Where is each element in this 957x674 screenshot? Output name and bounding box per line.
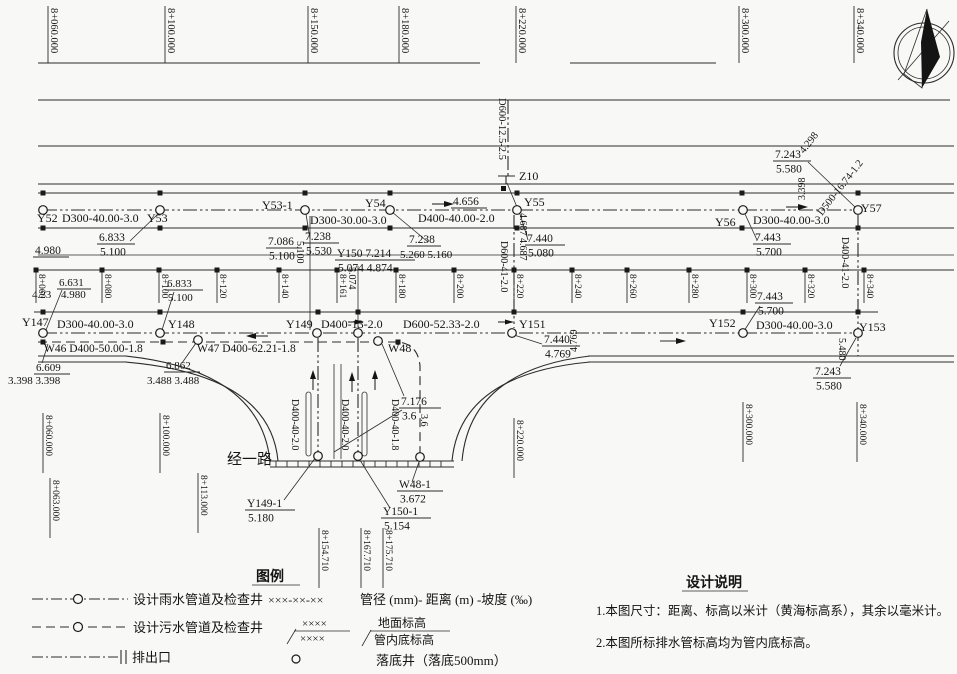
plan-label-rotated: D600-41-2.0 [498,241,509,292]
note-1: 1.本图尺寸：距离、标高以米计（黄海标高系），其余以毫米计。 [596,603,949,618]
plan-label: 4.980 [61,289,86,301]
elevation-label: 6.833 [167,278,192,290]
manhole-circle [39,206,48,215]
elevation-label: 3.6 [402,411,417,423]
station-label: 8+300.000 [739,8,750,53]
plan-label: Y55 [524,195,545,209]
legend-drop-label: 落底井（落底500mm） [376,653,507,668]
elevation-label: 6.862 [166,360,191,372]
station-label: 8+060.000 [43,415,53,456]
pipe-node-square [856,310,861,315]
manhole-circle [314,452,323,461]
manhole-circle [508,329,517,338]
plan-label: Z10 [519,169,538,183]
plan-label: D300-40.00-3.0 [753,213,830,227]
plan-label: D300-30.00-3.0 [310,213,387,227]
drainage-plan-drawing: 图例 设计雨水管道及检查井 ×××-××-×× 管径 (mm)- 距离 (m) … [0,0,957,674]
elevation-label: 6.833 [99,232,125,244]
tick-square [625,268,630,273]
tick-square [745,268,750,273]
pipe-node-square [303,191,308,196]
legend-sewer-manhole-icon [74,623,83,632]
pipe-node-square [856,226,861,231]
plan-label: Y152 [709,316,736,330]
manhole-circle [354,329,363,338]
elevation-label: 5.080 [528,248,554,260]
legend-elev-top: ×××× [302,618,327,630]
elevation-label: 6.609 [36,362,61,374]
legend-outfall-label: 排出口 [132,650,171,665]
plan-label: W47 D400-62.21-1.8 [197,343,296,355]
plan-label: Y151 [519,317,546,331]
manhole-circle [386,206,395,215]
station-label: 8+080 [102,274,112,299]
plan-label-rotated: D400-40-2.0 [339,399,350,450]
station-label: 8+320 [805,274,815,299]
station-label: 8+180.000 [399,8,410,53]
legend-sewer-label: 设计污水管道及检查井 [133,620,263,635]
pipe-node-square [316,310,321,315]
station-label: 8+161 [337,274,347,299]
station-label: 8+167.710 [361,530,371,571]
elevation-label: Y150 7.214 [337,248,392,260]
manhole-circle [301,206,310,215]
tick-square [277,268,282,273]
manhole-circle [39,329,48,338]
pipe-node-square [356,310,361,315]
manhole-circle [513,206,522,215]
elevation-label: 5.580 [816,381,842,393]
station-label: 8+100.000 [160,415,170,456]
legend-elev-bottom: ×××× [300,633,325,645]
tick-square [215,268,220,273]
elevation-label: 5.100 [168,292,193,304]
elevation-label: 7.443 [757,291,783,303]
elevation-label: 4.769 [545,349,571,361]
pipe-node-square [512,310,517,315]
plan-label: 经一路 [227,451,272,468]
pipe-node-square [396,340,401,345]
elevation-label: W48-1 [399,479,431,491]
tick-square [394,268,399,273]
generated-annotations: Y52D300-40.00-3.0Y53Y53-1Y54D300-30.00-3… [8,6,886,588]
manhole-circle [854,206,863,215]
elevation-label: 7.238 [409,234,435,246]
elevation-label: 7.243 [815,366,841,378]
note-2: 2.本图所标排水管标高均为管内底标高。 [596,635,818,650]
drainage-plan-sheet: 图例 设计雨水管道及检查井 ×××-××-×× 管径 (mm)- 距离 (m) … [0,0,957,674]
manhole-circle [156,329,165,338]
tick-square [34,268,39,273]
station-label: 8+240 [572,274,582,299]
pipe-node-square [388,226,393,231]
station-label: 8+300 [747,274,757,299]
elevation-label: 7.176 [401,396,427,408]
elevation-label: 6.631 [59,277,84,289]
station-label: 8+220.000 [514,420,524,461]
pipe-node-square [740,191,745,196]
elevation-label: 7.243 [775,149,801,161]
station-label: 8+220.000 [516,8,527,53]
manhole-circle [854,329,863,338]
manhole-circle [739,206,748,215]
plan-label-rotated: 5.480 [836,338,847,361]
manhole-circle [313,329,322,338]
station-label: 8+150.000 [308,8,319,53]
legend-rain-label: 设计雨水管道及检查井 [133,592,263,607]
tick-square [157,268,162,273]
plan-label-rotated: D400-40-2.0 [289,399,300,450]
tick-square [862,268,867,273]
pipe-node-square [303,226,308,231]
station-label: 8+100 [159,274,169,299]
plan-label: D300-40.00-3.0 [62,211,139,225]
station-label: 8+154.710 [319,530,329,571]
elevation-label: 5.100 [100,247,126,259]
station-label: 8+180 [396,274,406,299]
plan-label: Y56 [715,215,736,229]
pipe-node-square [41,310,46,315]
plan-label: Y147 [22,315,49,329]
sewer-pipe-lines [38,342,420,456]
pipe-node-square [740,226,745,231]
station-label: 8+063.000 [50,480,60,521]
pipe-node-square [856,191,861,196]
plan-label-rotated: D600-12.5-2.5 [496,98,507,160]
pipe-node-square [158,226,163,231]
elevation-label: 7.440 [544,334,570,346]
pipe-node-square [41,340,46,345]
plan-label: Y149 [286,317,313,331]
plan-label: Y153 [859,320,886,334]
station-label: 8+280 [689,274,699,299]
legend-drop-manhole-icon [292,655,300,663]
elevation-label: 5.580 [776,164,802,176]
plan-label: D400-40.00-2.0 [418,211,495,225]
manhole-circle [416,453,425,462]
plan-label: Y148 [168,317,195,331]
station-label: 8+120 [217,274,227,299]
legend-title: 图例 [256,568,284,585]
plan-label: D400-13-2.0 [321,317,383,331]
tick-square [512,268,517,273]
manhole-circle [194,336,203,345]
elevation-label: 5.700 [758,306,784,318]
station-label: 8+340 [864,274,874,299]
plan-label: W46 D400-50.00-1.8 [44,343,143,355]
notes-title: 设计说明 [686,574,742,591]
pipe-node-square [388,191,393,196]
tick-square [803,268,808,273]
plan-label: 3.398 3.398 [8,375,61,387]
legend-rain-manhole-icon [74,595,83,604]
pipe-node-square [41,226,46,231]
legend-ground-label: 地面标高 [378,615,426,630]
elevation-label: Y149-1 [247,498,282,510]
station-label: 8+140 [279,274,289,299]
tick-square [335,268,340,273]
pipe-node-square [161,340,166,345]
elevation-label: 5.530 [306,246,332,258]
elevation-label: 7.443 [755,232,781,244]
legend-invert-label: 管内底标高 [374,632,434,647]
plan-label: 5.260 5.160 [400,249,453,261]
pipe-node-square [158,191,163,196]
elevation-label: 3.672 [400,494,426,506]
plan-label: Y53-1 [262,198,293,212]
elevation-label: 7.086 [268,236,294,248]
plan-label: Y57 [861,201,882,215]
manhole-circle [354,452,363,461]
north-arrow-compass [894,9,954,88]
elevation-label: 5.180 [248,513,274,525]
design-notes: 设计说明 1.本图尺寸：距离、标高以米计（黄海标高系），其余以毫米计。 2.本图… [596,574,949,650]
plan-label-rotated: 3.398 [797,178,808,201]
station-label: 8+260 [627,274,637,299]
plan-label: D300-40.00-3.0 [57,317,134,331]
station-label: 8+175.710 [383,530,393,571]
station-label: 8+113.000 [198,475,208,516]
elevation-label: 5.074 4.874 [338,263,393,275]
pipe-node-square [41,191,46,196]
station-label: 8+200 [454,274,464,299]
elevation-label: 7.440 [527,233,553,245]
legend-text: 图例 设计雨水管道及检查井 ×××-××-×× 管径 (mm)- 距离 (m) … [132,568,532,668]
manhole-circle [739,329,748,338]
tick-square [452,268,457,273]
pipe-node-square [515,191,520,196]
plan-label-rotated: 4.298 [798,130,821,155]
plan-label-rotated: 5.100 [294,241,305,264]
plan-label-rotated: D400-41-2.0 [839,237,850,288]
elevation-label: 5.100 [269,251,295,263]
pipe-node-square [515,226,520,231]
plan-label: 3.488 3.488 [147,375,200,387]
station-label: 8+220 [514,274,524,299]
tick-square [100,268,105,273]
tick-square [570,268,575,273]
station-label: 8+060 [36,274,46,299]
station-label: 8+060.000 [48,8,59,53]
pipe-node-square [741,310,746,315]
station-label: 8+100.000 [165,8,176,53]
elevation-label: 4.980 [35,245,61,257]
manhole-circle [374,337,383,346]
plan-label: D300-40.00-3.0 [756,318,833,332]
station-label: 8+300.000 [743,404,753,445]
tick-square [687,268,692,273]
elevation-label: 4.656 [453,196,479,208]
elevation-label: 7.238 [305,231,331,243]
elevation-label: Y150-1 [383,506,418,518]
pipe-node-square [158,310,163,315]
station-label: 8+340.000 [854,8,865,53]
manhole-circle [156,206,165,215]
plan-label: D600-52.33-2.0 [403,317,480,331]
legend-rain-code: ×××-××-×× [268,593,323,607]
elevation-label: 5.700 [756,247,782,259]
plan-label-rotated: D400-40-1.8 [389,399,400,450]
station-label: 8+340.000 [857,404,867,445]
plan-label-rotated: 3.6 [418,414,429,427]
legend-rain-desc: 管径 (mm)- 距离 (m) -坡度 (‰) [360,592,532,607]
plan-label: Y54 [365,196,386,210]
